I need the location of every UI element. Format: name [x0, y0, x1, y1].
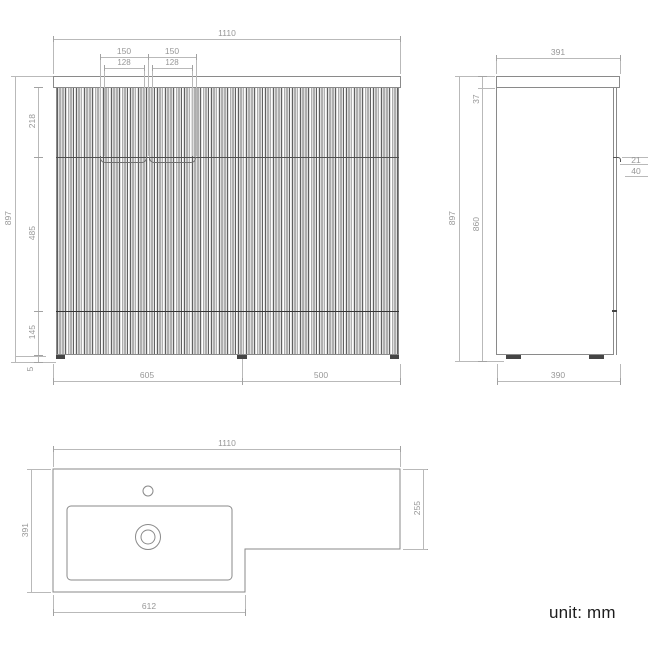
dim-handle-span-right: 150 — [149, 46, 195, 56]
side-handle-profile — [613, 157, 621, 162]
dim-handle-inner-right: 128 — [152, 58, 192, 68]
dim-line — [38, 87, 39, 363]
extension-line — [53, 42, 54, 74]
front-plinth-line — [56, 311, 399, 312]
front-fluted-body — [56, 88, 399, 355]
dim-handle-inner-left: 128 — [104, 58, 144, 68]
dim-line — [459, 76, 460, 361]
dim-basin-width: 612 — [119, 601, 179, 611]
dim-plinth-height: 145 — [27, 312, 37, 352]
dim-front-overall-width: 1110 — [202, 28, 252, 38]
dim-tick — [620, 378, 621, 385]
dim-line — [53, 449, 401, 450]
dim-foot-height: 5 — [25, 349, 35, 389]
extension-line — [11, 76, 53, 77]
dim-cabinet-height: 860 — [471, 204, 481, 244]
front-foot-left — [56, 355, 65, 359]
extension-line — [104, 71, 105, 156]
extension-line — [192, 71, 193, 156]
extension-line — [152, 71, 153, 156]
side-plinth-mark — [612, 310, 617, 312]
dim-line — [497, 381, 620, 382]
plan-counter-drawing — [40, 460, 440, 605]
dim-tick — [478, 361, 487, 362]
dim-line — [423, 469, 424, 549]
dim-plan-overall-width: 1110 — [197, 438, 257, 448]
dim-line — [15, 76, 16, 363]
dim-side-depth-top: 391 — [528, 47, 588, 57]
dim-line — [104, 68, 144, 69]
side-countertop — [496, 76, 620, 88]
dim-line — [482, 76, 483, 361]
dim-tick — [53, 378, 54, 385]
extension-line — [27, 592, 51, 593]
dim-handle-depth: 40 — [626, 166, 646, 176]
counter-outline — [53, 469, 400, 592]
dim-tick — [34, 87, 43, 88]
extension-line — [403, 469, 427, 470]
dim-tick — [497, 378, 498, 385]
dim-tick — [34, 362, 43, 363]
dim-line — [53, 39, 401, 40]
technical-drawing: 1110 150 150 128 128 897 — [0, 0, 650, 650]
dim-tick — [400, 378, 401, 385]
dim-line — [496, 58, 620, 59]
dim-front-overall-height: 897 — [3, 198, 13, 238]
extension-line — [144, 71, 145, 156]
side-cabinet-body — [496, 88, 614, 355]
dim-wc-width: 500 — [291, 370, 351, 380]
dim-plan-depth-right: 255 — [412, 488, 422, 528]
dim-counter-thickness: 37 — [471, 79, 481, 119]
front-countertop — [53, 76, 401, 88]
dim-handle-span-left: 150 — [101, 46, 147, 56]
extension-line — [496, 61, 497, 74]
extension-line — [196, 60, 197, 156]
dim-line — [152, 68, 192, 69]
dim-line — [53, 612, 245, 613]
unit-note: unit: mm — [549, 603, 616, 623]
front-foot-right — [390, 355, 399, 359]
extension-line — [27, 469, 51, 470]
extension-line — [620, 61, 621, 74]
handle-recess-left — [100, 157, 147, 163]
dim-plan-depth-left: 391 — [20, 510, 30, 550]
dim-line — [53, 381, 401, 382]
dim-line — [31, 469, 32, 592]
extension-line — [148, 60, 149, 156]
dim-tick — [53, 609, 54, 616]
dim-door-height: 485 — [27, 213, 37, 253]
side-foot-back — [506, 355, 521, 359]
side-front-face-line — [616, 88, 617, 355]
extension-line — [403, 549, 427, 550]
extension-line — [455, 76, 495, 77]
extension-line — [400, 42, 401, 74]
dim-drawer-height: 218 — [27, 101, 37, 141]
dim-tick — [34, 157, 43, 158]
dim-handle-reveal: 21 — [626, 155, 646, 165]
dim-side-overall-height: 897 — [447, 198, 457, 238]
dim-tick — [242, 378, 243, 385]
dim-tick — [245, 609, 246, 616]
dim-tick — [478, 76, 487, 77]
handle-recess-right — [149, 157, 196, 163]
dim-vanity-width: 605 — [117, 370, 177, 380]
extension-line — [100, 60, 101, 156]
side-foot-front — [589, 355, 604, 359]
dim-side-depth-base: 390 — [528, 370, 588, 380]
